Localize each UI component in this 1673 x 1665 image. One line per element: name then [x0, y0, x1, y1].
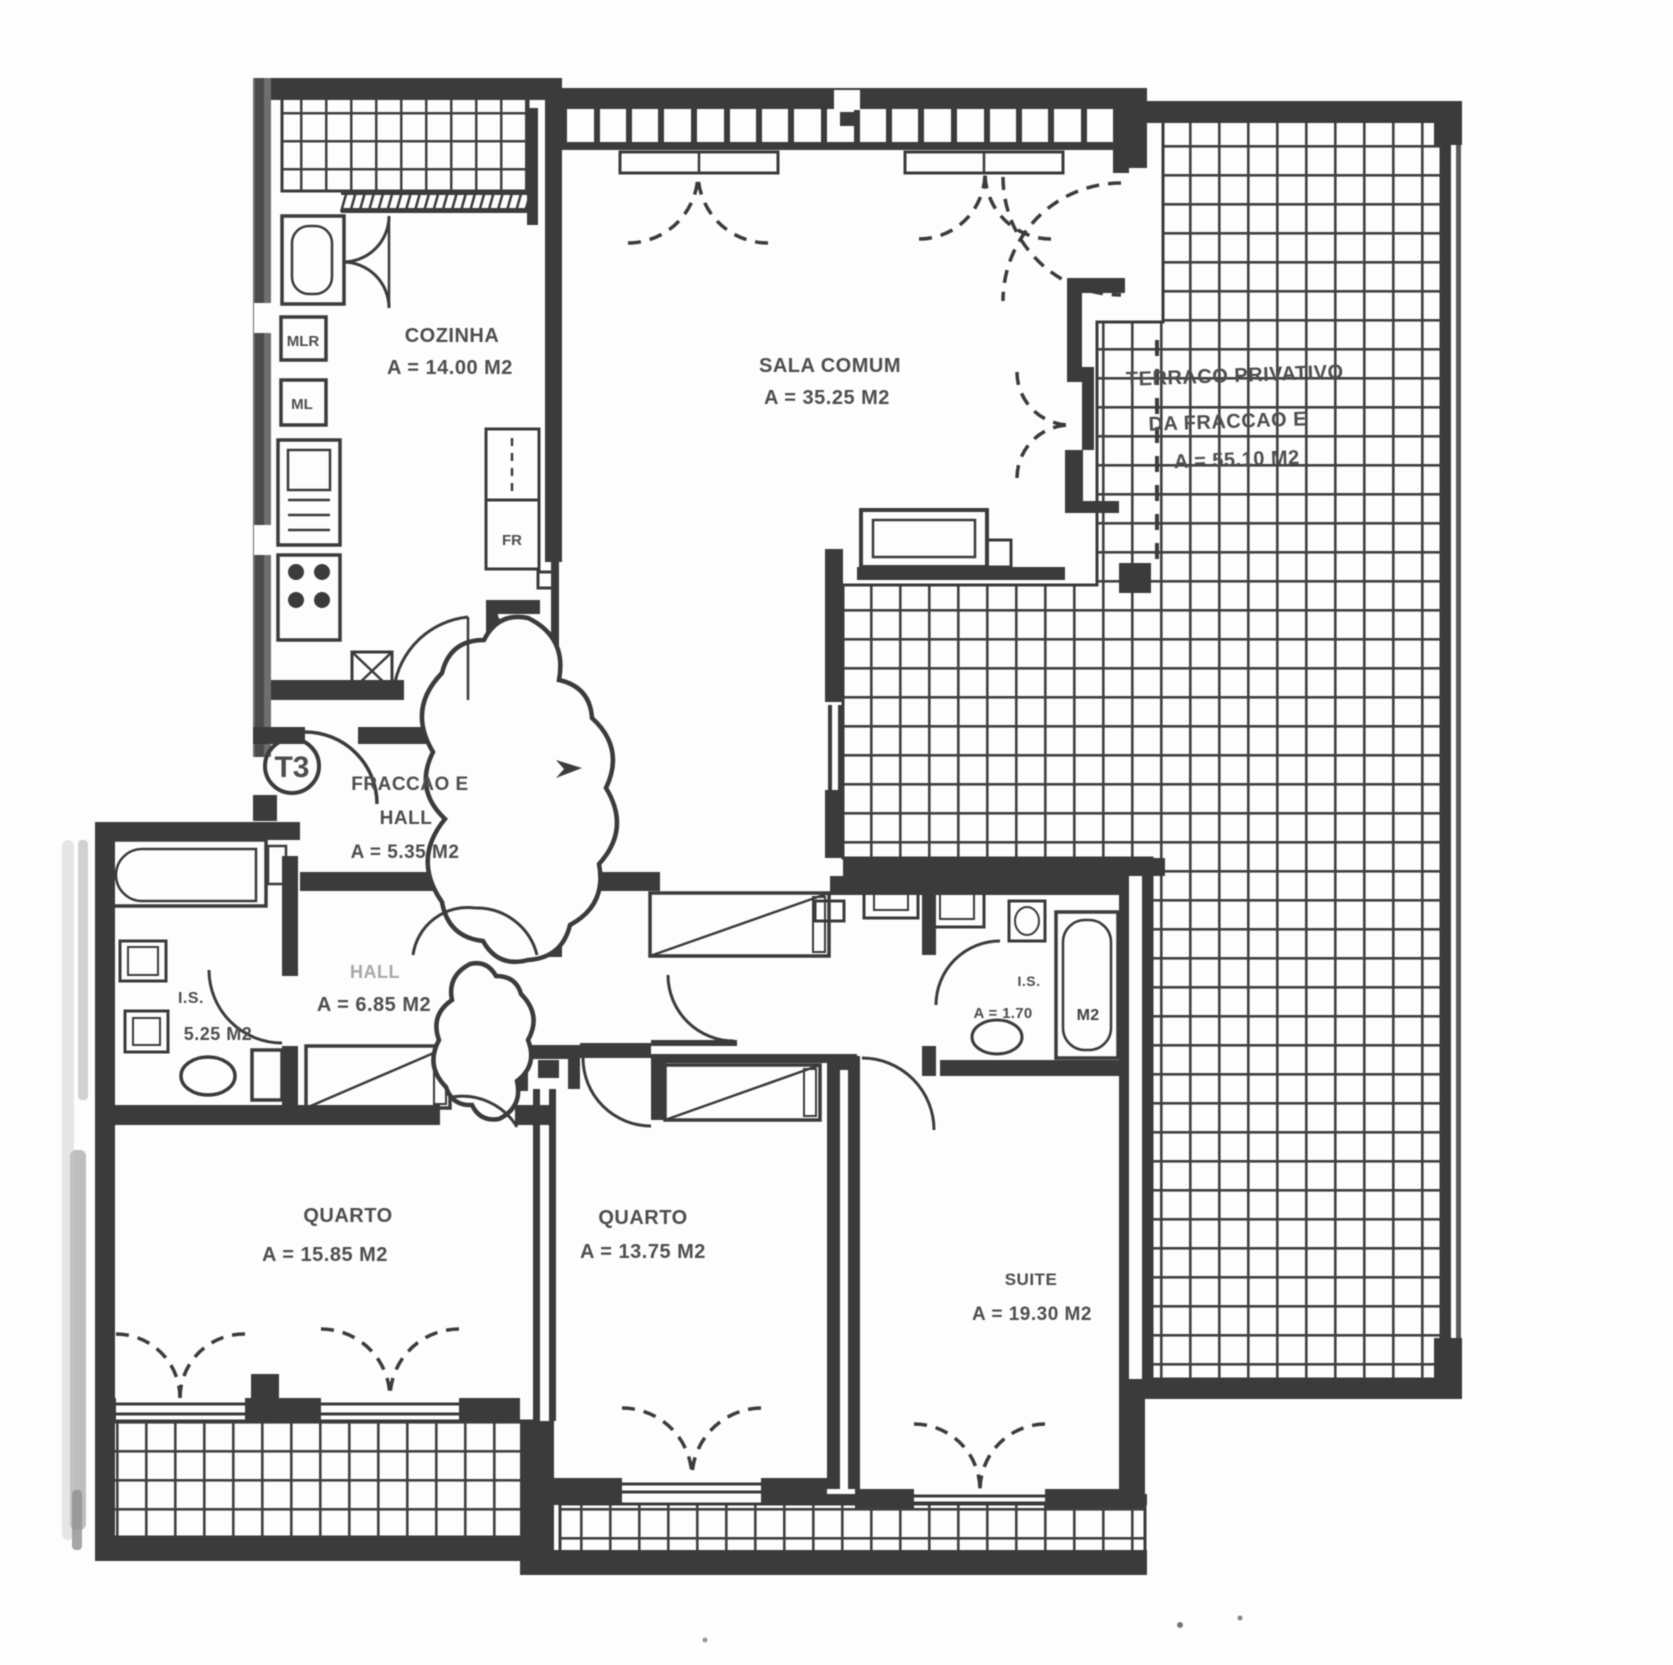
svg-text:I.S.: I.S. [1017, 973, 1040, 989]
svg-text:SALA COMUM: SALA COMUM [759, 355, 901, 377]
svg-text:A = 13.75 M2: A = 13.75 M2 [580, 1241, 706, 1263]
svg-text:A = 14.00 M2: A = 14.00 M2 [387, 357, 513, 379]
svg-text:HALL: HALL [380, 808, 433, 829]
svg-text:QUARTO: QUARTO [598, 1207, 687, 1229]
svg-text:A = 1.70: A = 1.70 [974, 1005, 1033, 1022]
svg-text:M2: M2 [1077, 1007, 1100, 1024]
svg-text:QUARTO: QUARTO [303, 1205, 392, 1227]
svg-text:A = 55.10 M2: A = 55.10 M2 [1173, 447, 1300, 473]
svg-text:T3: T3 [274, 751, 309, 784]
svg-text:SUITE: SUITE [1005, 1270, 1058, 1289]
svg-text:5.25 M2: 5.25 M2 [184, 1024, 253, 1044]
svg-text:MLR: MLR [287, 333, 320, 350]
svg-text:HALL: HALL [350, 962, 400, 982]
svg-text:FRACCAO E: FRACCAO E [351, 774, 468, 795]
svg-text:COZINHA: COZINHA [405, 325, 500, 347]
svg-text:A = 19.30 M2: A = 19.30 M2 [972, 1304, 1092, 1325]
svg-text:I.S.: I.S. [178, 990, 204, 1007]
svg-text:ML: ML [291, 396, 313, 413]
svg-text:A = 6.85 M2: A = 6.85 M2 [317, 994, 431, 1016]
svg-text:A = 15.85 M2: A = 15.85 M2 [262, 1244, 388, 1266]
svg-text:FR: FR [502, 532, 522, 549]
svg-text:A = 5.35 M2: A = 5.35 M2 [351, 842, 460, 863]
svg-text:A = 35.25 M2: A = 35.25 M2 [764, 387, 890, 409]
